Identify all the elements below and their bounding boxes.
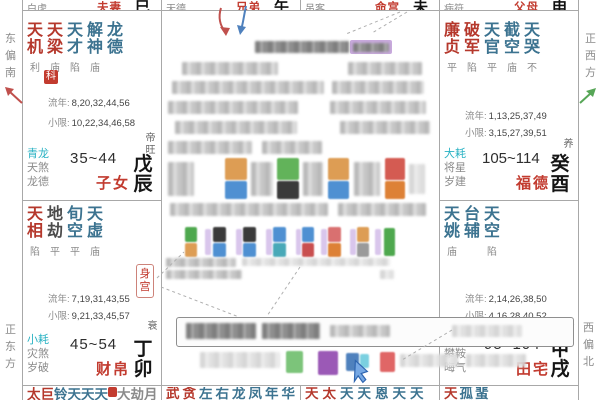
palace-cell-parents-clipped[interactable]: 病符 父母 申 — [440, 0, 577, 10]
pillar-fleck — [266, 229, 272, 255]
branch-char: 午 — [274, 0, 289, 10]
connector-line — [161, 287, 239, 317]
connector-line — [346, 12, 400, 34]
palace-cell-siblings-clipped[interactable]: 天德 兄弟 午 — [162, 0, 299, 10]
changsheng-stage: 养 — [563, 139, 574, 151]
star-text: 大劫月 — [117, 387, 158, 400]
pillar-block — [328, 158, 349, 180]
star: 截空庙 — [504, 22, 520, 70]
star-text: 铃天天天 — [54, 387, 108, 400]
suiqian-star-label: 天德 — [166, 0, 186, 10]
redacted-text — [168, 101, 298, 114]
branch-char: 未 — [413, 0, 428, 10]
branch-char: 申 — [552, 0, 567, 10]
star-list: 天相陷 地劫平 旬空平 天虚庙 — [27, 206, 103, 254]
star-text: 天 — [440, 387, 460, 400]
star-list: 廉贞平 破军陷 天官平 截空庙 天哭不 — [444, 22, 540, 70]
pillar-fleck — [321, 229, 327, 255]
star: 天官平 — [484, 22, 500, 70]
stem-branch: 丁卯 — [133, 340, 153, 380]
palace-name: 兄弟 — [236, 0, 261, 10]
palace-name: 夫妻 — [97, 0, 122, 10]
suiqian-star-label: 病符 — [444, 0, 464, 10]
star-text: 左右龙凤年华 — [199, 387, 298, 400]
star-text: 太巨 — [23, 387, 54, 400]
grid-line — [161, 0, 162, 400]
pillar-fleck — [296, 229, 301, 255]
branch-char: 巳 — [135, 0, 150, 10]
palace-cell-children[interactable]: 天机利 天梁庙 天才陷 解神庙 龙德 科 流年:8,20,32,44,56 小限… — [23, 11, 160, 200]
redacted-text — [353, 43, 389, 52]
red-arrow-icon — [220, 8, 230, 36]
redacted-text — [400, 354, 458, 367]
decade-age-range: 35~44 — [70, 150, 117, 167]
palace-name: 财帛 — [96, 358, 130, 379]
redacted-title — [255, 41, 349, 53]
decade-age-range: 45~54 — [70, 336, 117, 353]
star-text: 武贪 — [162, 387, 199, 400]
redacted-text — [168, 162, 194, 196]
pillar-block — [185, 243, 197, 257]
xiaoxian-ages: 小限:9,21,33,45,57 — [48, 308, 130, 322]
shensha-list: 大耗 将星 岁建 — [444, 148, 466, 190]
palace-cell-travel-clipped[interactable]: 武贪左右龙凤年华 — [162, 387, 299, 400]
star: 天相陷 — [27, 206, 43, 254]
redacted-text — [380, 270, 394, 279]
pillar-block — [328, 227, 341, 242]
pillar-block — [243, 227, 256, 242]
palace-name: 父母 — [514, 0, 539, 10]
star: 廉贞平 — [444, 22, 460, 70]
redacted-text — [186, 323, 256, 339]
star: 地劫平 — [47, 206, 63, 254]
palace-cell-fortune[interactable]: 廉贞平 破军陷 天官平 截空庙 天哭不 流年:1,13,25,37,49 小限:… — [440, 11, 577, 200]
highlight-blue[interactable] — [346, 353, 359, 371]
star-text: 天太 — [301, 387, 340, 400]
palace-cell-life-clipped[interactable]: 吊客 命宫 未 — [301, 0, 438, 10]
highlight-purple[interactable] — [318, 351, 338, 375]
sihua-ke-badge: 科 — [44, 70, 58, 84]
redacted-text — [182, 62, 278, 75]
redacted-text — [330, 325, 390, 337]
star-list: 天姚庙 台辅 天空陷 — [444, 206, 500, 254]
pillar-block — [225, 158, 247, 180]
body-palace-badge: 身宫 — [136, 264, 154, 298]
palace-name: 命宫 — [375, 0, 400, 10]
pillar-block — [213, 227, 226, 242]
pillar-fleck — [205, 229, 211, 255]
star: 旬空平 — [67, 206, 83, 254]
pillar-block — [277, 181, 299, 199]
highlight-red[interactable] — [380, 352, 395, 372]
redacted-text — [303, 162, 323, 196]
redacted-text — [452, 325, 522, 337]
star: 天机利 — [27, 22, 43, 70]
pillar-fleck — [375, 229, 381, 255]
pillar-block — [328, 243, 341, 257]
star-list: 天机利 天梁庙 天才陷 解神庙 龙德 — [27, 22, 123, 70]
grid-line — [578, 0, 579, 400]
redacted-text — [338, 203, 426, 216]
liunian-ages: 流年:2,14,26,38,50 — [465, 291, 547, 305]
pillar-block — [385, 181, 405, 199]
redacted-text — [354, 162, 380, 196]
pillar-block — [213, 243, 226, 257]
redacted-text — [168, 141, 252, 154]
pillar-block — [357, 227, 369, 242]
palace-cell-career-clipped[interactable]: 天孤蜚 — [440, 387, 577, 400]
pillar-fleck — [350, 229, 356, 255]
direction-label-east-southeast: 东偏南 — [4, 31, 17, 82]
pillar-block — [277, 158, 299, 180]
redacted-text — [175, 121, 297, 134]
right-green-arrow-icon — [580, 88, 596, 103]
sihua-badge — [108, 387, 117, 397]
redacted-text — [170, 203, 328, 216]
redacted-text — [332, 81, 424, 94]
star: 天空陷 — [484, 206, 500, 254]
liunian-ages: 流年:8,20,32,44,56 — [48, 95, 130, 109]
pillar-block — [357, 243, 369, 257]
star: 天梁庙 — [47, 22, 63, 70]
redacted-text — [172, 81, 324, 94]
redacted-text — [200, 352, 280, 368]
pillar-fleck — [236, 229, 242, 255]
pillar-block — [225, 181, 247, 199]
redacted-text — [409, 164, 425, 194]
suiqian-star-label: 吊客 — [305, 0, 325, 10]
star: 天姚庙 — [444, 206, 460, 254]
star: 破军陷 — [464, 22, 480, 70]
palace-cell-health-clipped[interactable]: 太巨铃天天天大劫月 — [23, 387, 160, 400]
stem-branch: 戊辰 — [133, 155, 153, 195]
redacted-text — [262, 323, 320, 339]
palace-cell-spouse-clipped[interactable]: 白虎 夫妻 巳 — [23, 0, 160, 10]
pillar-block — [385, 158, 405, 180]
pillar-block — [302, 227, 314, 242]
xiaoxian-ages: 小限:10,22,34,46,58 — [48, 115, 135, 129]
star-text: 天天恩天天 — [340, 387, 428, 400]
left-red-arrow-icon — [5, 87, 22, 103]
direction-label-due-east: 正东方 — [4, 322, 17, 373]
star: 龙德 — [107, 22, 123, 70]
redacted-text — [330, 101, 426, 114]
redacted-text — [251, 162, 273, 196]
redacted-text — [348, 62, 422, 75]
palace-name: 子女 — [96, 172, 130, 193]
star-text: 孤蜚 — [460, 387, 491, 400]
pillar-block — [273, 243, 286, 257]
redacted-text — [166, 270, 242, 279]
star: 台辅 — [464, 206, 480, 254]
shensha-list: 青龙 天煞 龙德 — [27, 148, 49, 190]
pillar-block — [328, 181, 349, 199]
redacted-text — [262, 141, 322, 154]
pillar-block — [273, 227, 286, 242]
star: 天哭不 — [524, 22, 540, 70]
xiaoxian-ages: 小限:3,15,27,39,51 — [465, 125, 547, 139]
changsheng-stage: 衰 — [147, 321, 158, 333]
shensha-list: 小耗 灾煞 岁破 — [27, 334, 49, 376]
grid-line — [22, 385, 579, 386]
connector-line — [267, 267, 300, 316]
ziwei-chart: 东偏南 正东方 正西方 西偏北 白虎 夫妻 巳 天德 兄弟 午 吊客 命宫 未 … — [0, 0, 600, 400]
star: 解神庙 — [87, 22, 103, 70]
pillar-block — [243, 243, 256, 257]
highlight-green[interactable] — [286, 351, 303, 373]
palace-name: 福德 — [516, 172, 550, 193]
palace-cell-friends-clipped[interactable]: 天太天天恩天天 — [301, 387, 438, 400]
palace-cell-wealth[interactable]: 天相陷 地劫平 旬空平 天虚庙 身宫 流年:7,19,31,43,55 小限:9… — [23, 201, 160, 385]
suiqian-star-label: 白虎 — [27, 0, 47, 10]
redacted-text — [242, 258, 390, 266]
redacted-text — [166, 258, 236, 267]
stem-branch: 癸酉 — [550, 155, 570, 195]
decade-age-range: 105~114 — [482, 150, 540, 167]
star: 天虚庙 — [87, 206, 103, 254]
redacted-text — [340, 121, 430, 134]
connector-line — [372, 12, 407, 33]
direction-label-west-northwest: 西偏北 — [582, 320, 595, 371]
star: 天才陷 — [67, 22, 83, 70]
pillar-block — [384, 228, 395, 256]
direction-label-due-west: 正西方 — [584, 31, 597, 82]
liunian-ages: 流年:1,13,25,37,49 — [465, 108, 547, 122]
redacted-text — [466, 354, 526, 367]
pillar-block — [185, 227, 197, 242]
pillar-block — [302, 243, 314, 257]
highlight-cyan[interactable] — [360, 354, 369, 368]
liunian-ages: 流年:7,19,31,43,55 — [48, 291, 130, 305]
